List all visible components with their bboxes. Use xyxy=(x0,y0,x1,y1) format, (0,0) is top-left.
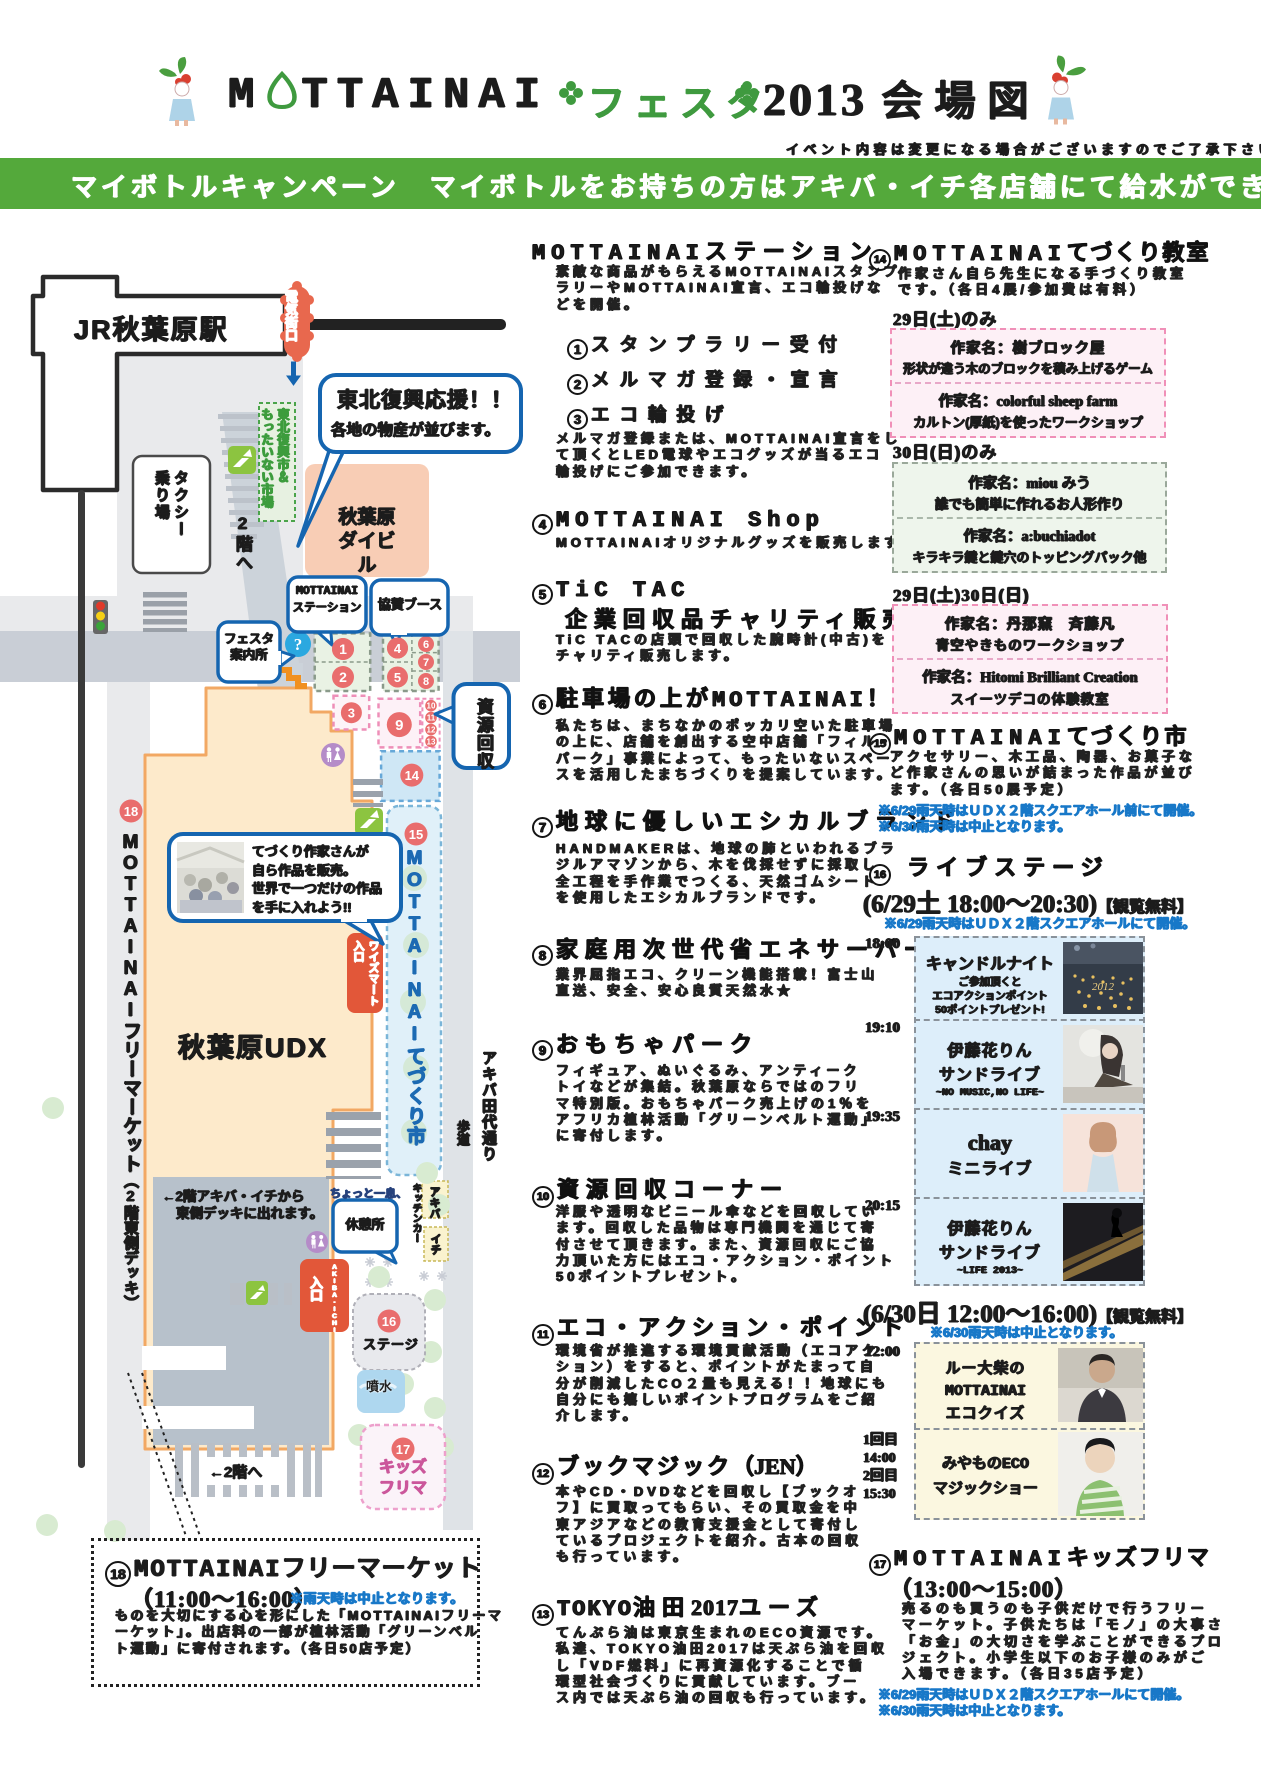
svg-text:15: 15 xyxy=(409,827,423,842)
svg-text:4: 4 xyxy=(394,641,402,656)
svg-text:3: 3 xyxy=(348,706,355,721)
svg-text:1: 1 xyxy=(339,641,347,657)
svg-text:5: 5 xyxy=(394,670,401,685)
svg-text:10: 10 xyxy=(427,702,436,711)
svg-text:6: 6 xyxy=(423,639,429,651)
svg-text:8: 8 xyxy=(423,676,429,688)
svg-text:2: 2 xyxy=(339,669,347,685)
svg-text:9: 9 xyxy=(395,717,403,734)
svg-text:7: 7 xyxy=(423,657,429,669)
svg-text:17: 17 xyxy=(396,1442,410,1457)
svg-text:?: ? xyxy=(294,635,303,654)
svg-text:12: 12 xyxy=(427,725,436,734)
svg-text:14: 14 xyxy=(405,768,420,783)
svg-text:16: 16 xyxy=(382,1314,396,1329)
svg-text:13: 13 xyxy=(427,737,436,746)
svg-text:18: 18 xyxy=(124,804,138,819)
svg-text:2012: 2012 xyxy=(1092,981,1115,993)
